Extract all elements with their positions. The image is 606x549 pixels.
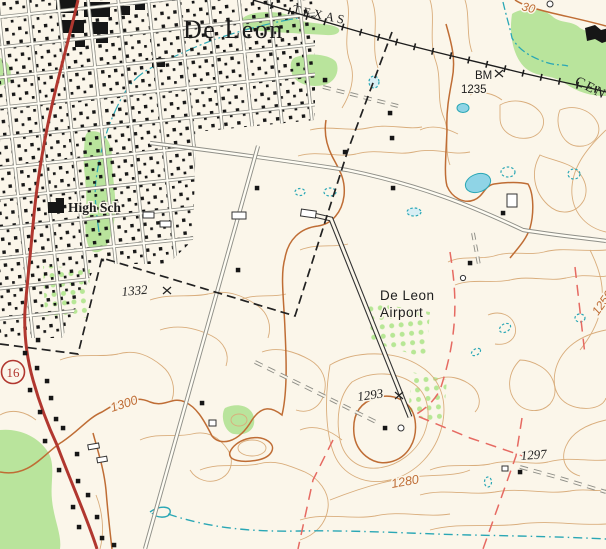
- school-label: High Sch: [68, 200, 121, 215]
- airport-label-line1: De Leon: [380, 288, 435, 303]
- town-label: De Leon: [183, 15, 284, 44]
- pond-intermittent: [369, 76, 379, 88]
- spot-elevation-1332: 1332: [121, 282, 149, 299]
- airport-label-line2: Airport: [380, 305, 423, 320]
- benchmark-abbr: BM: [475, 70, 492, 82]
- benchmark-elevation: 1235: [461, 84, 487, 96]
- pond-small: [457, 104, 469, 113]
- topo-map-canvas: 16: [0, 0, 606, 549]
- route-shield-number: 16: [7, 365, 21, 380]
- pond-intermittent: [407, 208, 421, 216]
- topo-map: 16: [0, 0, 606, 549]
- spot-elevation-1297: 1297: [520, 446, 547, 463]
